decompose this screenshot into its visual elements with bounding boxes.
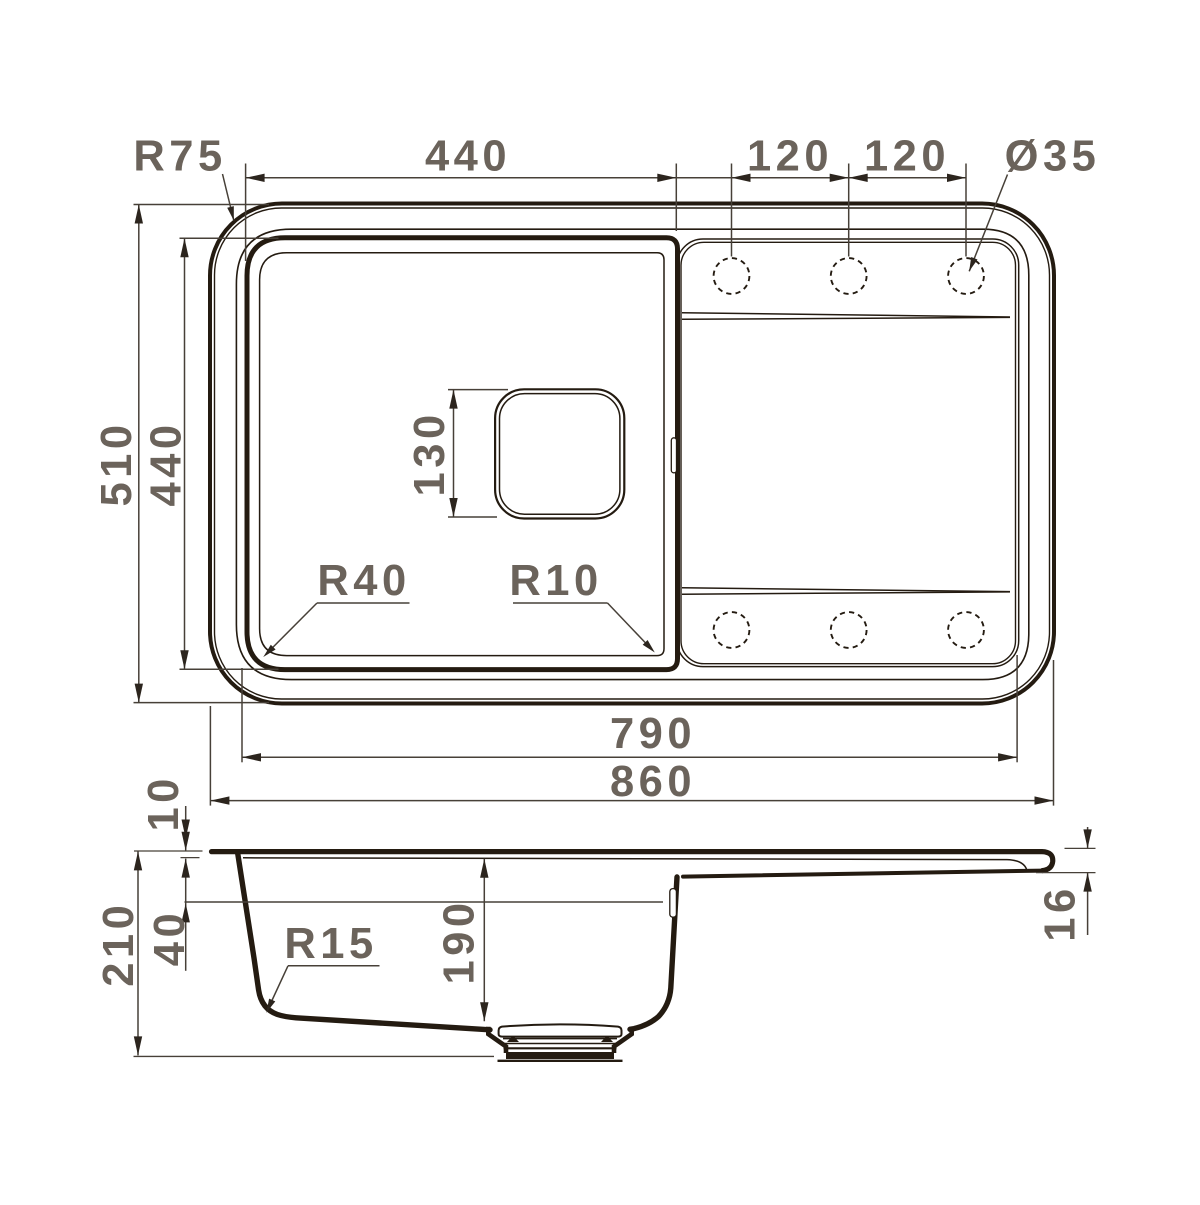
svg-text:R15: R15 <box>284 920 377 968</box>
svg-text:R75: R75 <box>133 133 226 181</box>
svg-text:190: 190 <box>436 898 484 984</box>
svg-text:16: 16 <box>1037 884 1085 941</box>
svg-text:120: 120 <box>747 133 833 181</box>
svg-text:210: 210 <box>95 901 143 987</box>
svg-text:860: 860 <box>610 758 696 806</box>
svg-text:130: 130 <box>406 410 454 496</box>
svg-text:10: 10 <box>140 774 188 831</box>
svg-text:R10: R10 <box>509 557 602 605</box>
svg-text:440: 440 <box>143 420 191 506</box>
svg-text:440: 440 <box>425 133 511 181</box>
svg-text:120: 120 <box>864 133 950 181</box>
svg-text:510: 510 <box>93 420 141 506</box>
svg-text:790: 790 <box>610 710 696 758</box>
svg-text:R40: R40 <box>317 557 410 605</box>
svg-text:Ø35: Ø35 <box>1005 133 1101 181</box>
svg-text:40: 40 <box>146 909 194 966</box>
